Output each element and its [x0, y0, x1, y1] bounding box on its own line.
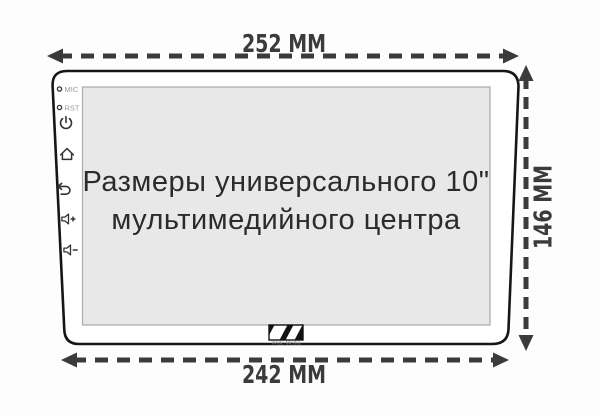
- right-height-label: 146 ММ: [531, 165, 556, 249]
- arrowhead-right-icon: [493, 353, 509, 368]
- top-width-label: 252 ММ: [242, 31, 326, 56]
- arrowhead-down-icon: [519, 335, 534, 351]
- mic-label: MIC: [65, 85, 79, 94]
- arrowhead-left-icon: [47, 49, 63, 64]
- screen-title-line1: Размеры универсального 10": [82, 163, 490, 201]
- brand-name: Wide Media: [271, 341, 301, 347]
- arrowhead-left-icon: [61, 353, 77, 368]
- bottom-width-label: 242 ММ: [242, 362, 326, 387]
- screen-title-line2: мультимедийного центра: [82, 201, 490, 239]
- screen-title: Размеры универсального 10" мультимедийно…: [82, 163, 490, 239]
- arrowhead-up-icon: [519, 65, 534, 81]
- dimension-diagram: MIC RST: [0, 0, 600, 416]
- arrowhead-right-icon: [503, 49, 519, 64]
- rst-label: RST: [65, 103, 80, 112]
